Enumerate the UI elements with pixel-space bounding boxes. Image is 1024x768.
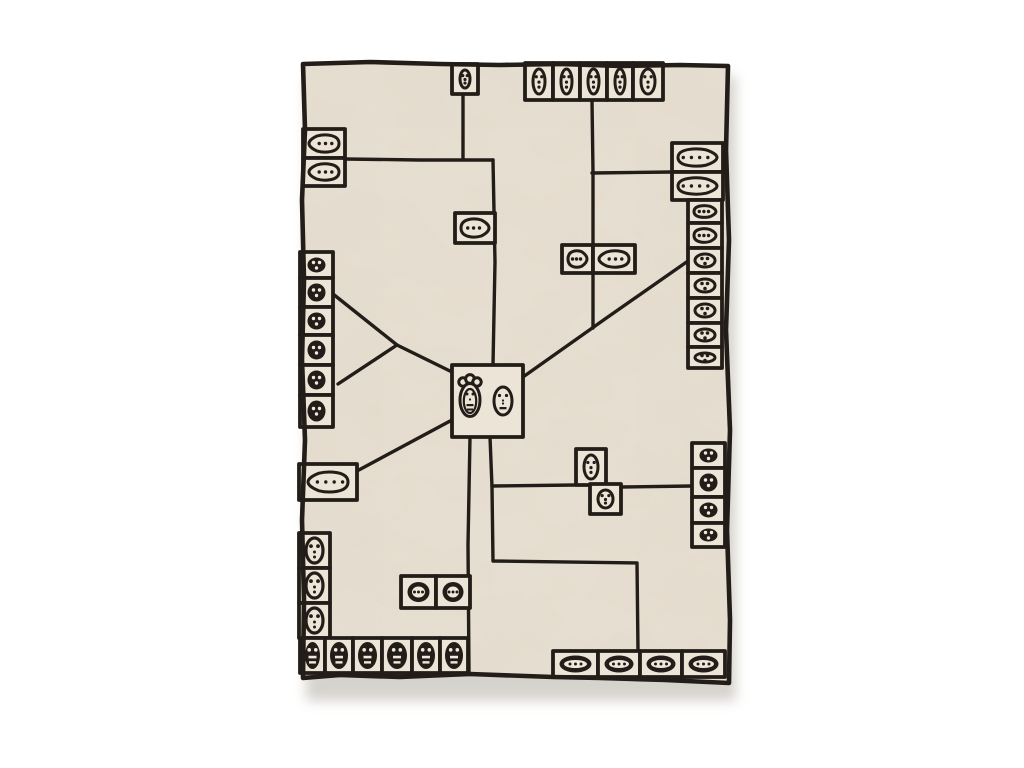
motif-box [452,365,523,437]
face-dot [466,226,469,229]
face-dot [710,478,713,481]
rug-drawing [292,52,738,701]
face-dot [589,471,592,474]
face-dot [466,393,469,396]
face-dot [428,648,432,652]
motif-box [672,143,723,172]
face-dot [456,591,459,594]
face-dot [313,551,316,554]
face-blob [308,371,326,390]
motif-box [682,651,725,677]
face-dot [698,156,701,159]
motif-box [598,651,640,677]
face-dot [710,506,713,509]
face-dot [703,336,707,340]
face-mouth-stripe [309,656,317,659]
face-dot [535,75,538,78]
face-dot [315,351,318,354]
motif-box [353,638,382,673]
face-dot [592,86,595,89]
face-dot [318,288,321,291]
rug-svg [0,0,1024,768]
face-dot [698,234,701,237]
face-mouth-stripe [364,656,372,659]
face-dot [608,257,611,260]
face-dot [341,480,344,483]
face-dot [702,234,705,237]
face-dot [565,86,568,89]
connector-line [621,486,692,487]
face-dot [618,81,621,84]
face-dot [700,282,704,286]
face-dot [643,75,646,78]
face-dot [316,614,320,618]
face-blob [445,642,463,669]
face-dot [334,648,338,652]
face-dot [392,648,396,652]
motif-box [688,298,722,323]
face-dot [574,663,577,666]
face-dot [502,402,504,404]
face-dot [592,81,595,84]
face-dot [704,506,707,509]
face-mouth-stripe [422,656,430,659]
motif-box-frame [688,347,722,368]
face-dot [318,261,321,264]
motif-box [436,576,470,608]
face-dot [707,511,710,514]
face-dot [614,257,617,260]
figure-mouth [500,407,507,409]
connector-line [492,485,576,486]
face-dot [312,288,315,291]
face-dot [710,451,713,454]
face-dot [313,626,316,629]
face-blob [387,642,407,669]
face-dot [607,494,610,497]
face-dot [706,257,710,261]
motif-box [688,273,722,298]
face-dot [710,531,713,534]
face-blob [308,341,326,360]
face-dot [312,407,315,410]
face-mouth-stripe [309,661,316,663]
motif-box [688,200,722,223]
face-dot [421,648,425,652]
face-dot [315,381,318,384]
motif-box [640,651,682,677]
face-blob [308,258,326,273]
motif-box-frame [688,273,722,298]
face-dot [704,451,707,454]
face-dot [312,261,315,264]
face-dot [421,591,424,594]
face-dot [650,75,653,78]
face-dot [706,354,710,358]
face-dot [646,81,649,84]
motif-box [688,347,722,368]
motif-box-frame [688,248,722,273]
motif-box [692,497,725,523]
face-dot [707,234,710,237]
face-dot [700,257,704,261]
face-dot [463,78,466,81]
motif-box [525,63,553,100]
face-dot [324,142,327,145]
figure-mouth [467,409,473,411]
face-dot [456,648,460,652]
face-dot [413,591,416,594]
face-dot [399,648,403,652]
face-dot [318,142,321,145]
face-dot [362,648,366,652]
motif-box [590,484,621,514]
face-dot [706,156,709,159]
face-mouth-stripe [450,656,458,659]
face-dot [537,81,540,84]
motif-box [303,158,345,186]
motif-box [303,129,345,158]
face-dot [697,663,700,666]
face-dot [461,74,464,77]
face-mouth-stripe [335,656,343,659]
face-dot [537,86,540,89]
face-dot [700,331,704,335]
face-dot [318,376,321,379]
motif-box [688,323,722,347]
face-mouth-stripe [393,656,401,659]
face-dot [567,75,570,78]
face-dot [316,579,320,583]
face-blob [358,642,377,669]
motif-box [440,638,468,673]
motif-box [688,248,722,273]
face-blob [308,401,326,422]
face-dot [469,398,471,400]
face-dot [330,142,333,145]
face-dot [682,156,685,159]
face-mouth-stripe [423,661,430,663]
face-dot [707,457,710,460]
face-dot [330,170,333,173]
motif-box [593,245,635,273]
face-dot [703,359,707,363]
face-dot [665,663,668,666]
face-dot [703,287,707,291]
motif-box [401,576,436,608]
face-dot [586,461,589,464]
face-dot [448,591,451,594]
face-dot [333,480,336,483]
face-dot [700,307,704,311]
face-dot [341,648,345,652]
face-dot [315,266,318,269]
motif-box [607,63,633,100]
face-dot [312,346,315,349]
motif-box [562,245,593,273]
face-dot [315,412,318,415]
face-dot [316,544,320,548]
face-dot [565,81,568,84]
face-dot [318,317,321,320]
motif-box [576,449,606,485]
face-dot [690,156,693,159]
face-dot [623,663,626,666]
face-dot [369,648,373,652]
face-dot [309,579,313,583]
face-dot [312,376,315,379]
face-blob [700,474,718,492]
face-blob [308,313,326,330]
face-dot [646,86,649,89]
face-dot [472,226,475,229]
face-dot [571,257,574,260]
face-dot [540,75,543,78]
motif-box [580,63,607,100]
face-dot [601,494,604,497]
face-dot [616,75,619,78]
face-dot [621,75,624,78]
face-dot [318,170,321,173]
face-dot [307,648,311,652]
face-dot [575,257,578,260]
motif-box [553,651,598,677]
face-dot [466,74,469,77]
face-dot [702,210,705,213]
motif-box [412,638,440,673]
face-dot [314,648,318,652]
face-blob [305,642,320,669]
face-dot [704,478,707,481]
face-dot [312,317,315,320]
face-blob [308,284,326,302]
face-dot [594,75,597,78]
face-dot [318,407,321,410]
face-dot [700,354,704,358]
motif-box [299,464,357,500]
face-dot [324,480,327,483]
figure-mouth [467,404,474,406]
face-dot [708,663,711,666]
face-mouth-stripe [364,661,371,663]
motif-box-frame [672,172,723,200]
face-dot [569,663,572,666]
face-dot [417,591,420,594]
face-dot [682,184,685,187]
connector-line [493,160,495,365]
face-dot [690,184,693,187]
motif-box-frame [688,323,722,347]
face-dot [562,75,565,78]
face-dot [309,544,313,548]
motif-box [325,638,353,673]
face-dot [313,556,316,559]
motif-box [455,213,495,243]
connector-line [592,172,672,173]
face-dot [589,466,592,469]
face-dot [706,282,710,286]
face-dot [660,663,663,666]
face-dot [313,621,316,624]
face-dot [449,648,453,652]
motif-box [382,638,412,673]
face-mouth-stripe [451,661,458,663]
face-dot [589,75,592,78]
face-dot [707,484,710,487]
face-dot [618,663,621,666]
face-dot [313,591,316,594]
face-dot [604,498,607,501]
face-dot [463,81,466,84]
face-dot [620,257,623,260]
face-dot [593,461,596,464]
face-blob [417,642,435,669]
motif-box [692,468,725,497]
face-dot [313,586,316,589]
motif-box [300,335,333,365]
face-dot [698,184,701,187]
face-dot [316,480,319,483]
face-dot [315,322,318,325]
face-dot [706,307,710,311]
face-dot [706,331,710,335]
motif-box [692,443,725,468]
motif-box [688,223,722,248]
face-dot [618,86,621,89]
face-dot [502,399,504,401]
motif-box [452,64,478,94]
connector-line [592,100,593,328]
face-dot [654,663,657,666]
face-blob [330,642,348,669]
motif-box-frame [672,143,723,172]
face-dot [612,663,615,666]
face-dot [704,531,707,534]
face-dot [706,184,709,187]
face-dot [309,614,313,618]
face-mouth-stripe [394,661,401,663]
motif-box [672,172,723,200]
face-dot [478,226,481,229]
face-dot [452,591,455,594]
face-dot [472,393,475,396]
motif-box-frame [688,298,722,323]
face-dot [698,210,701,213]
face-blob [700,503,718,518]
face-mouth-stripe [336,661,343,663]
connector-line [345,159,493,160]
motif-box [692,523,725,547]
face-dot [702,663,705,666]
face-dot [318,346,321,349]
face-dot [324,170,327,173]
face-dot [703,262,707,266]
product-photo-canvas [0,0,1024,768]
motif-box [553,63,580,100]
face-blob [700,449,718,463]
motif-box [633,63,663,100]
face-dot [707,210,710,213]
face-dot [707,536,710,539]
face-dot [315,294,318,297]
face-dot [580,663,583,666]
face-dot [505,394,508,397]
face-dot [579,257,582,260]
face-dot [703,312,707,316]
face-dot [498,394,501,397]
face-dot [604,501,607,504]
